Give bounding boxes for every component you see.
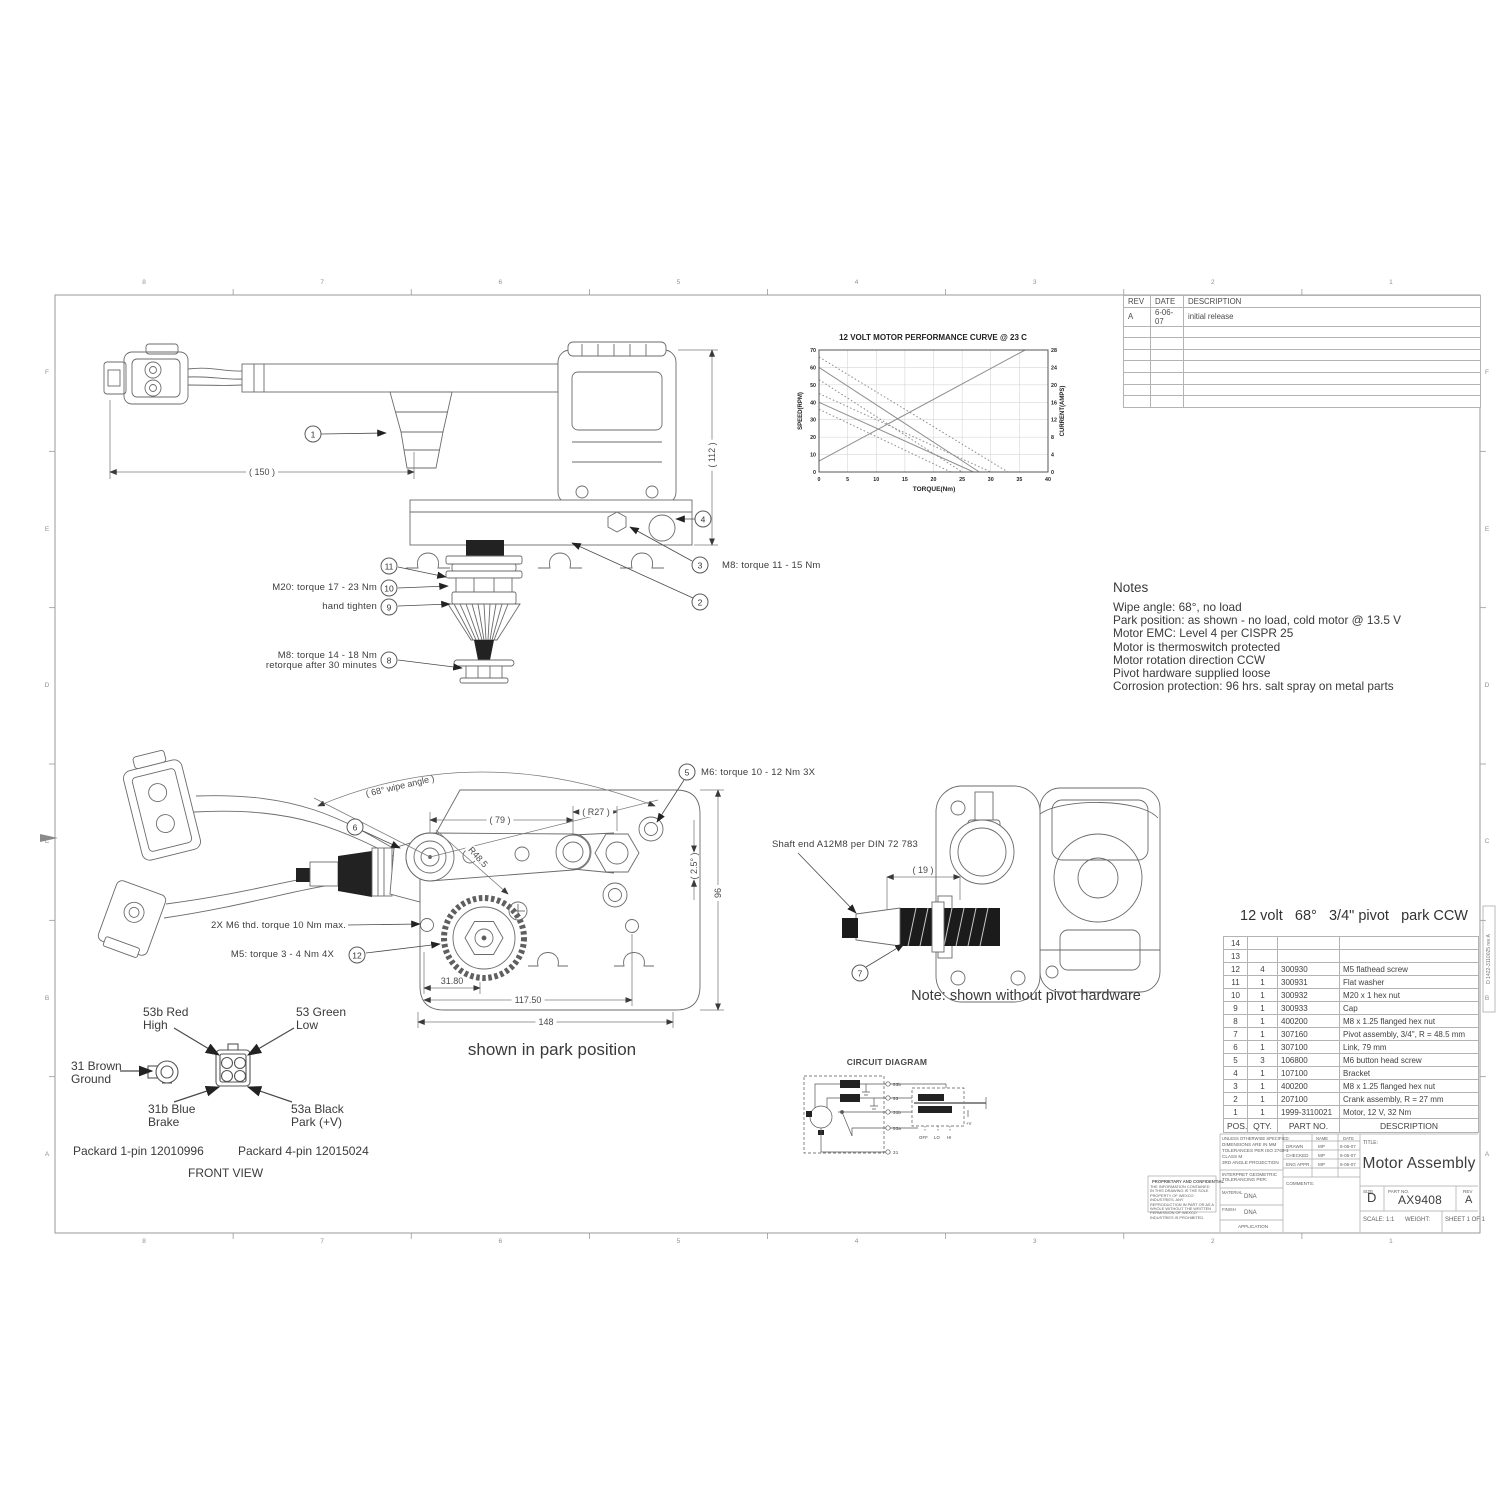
- tb-interpret: INTERPRET GEOMETRIC TOLERANCING PER:: [1222, 1172, 1280, 1182]
- tb-engappr-label: ENG APPR.: [1286, 1162, 1311, 1167]
- circuit-terminal-53a: 53a: [893, 1124, 901, 1135]
- zone-label: C: [1485, 838, 1490, 845]
- shaft-caption: Note: shown without pivot hardware: [911, 988, 1141, 1004]
- dim-79: ( 79 ): [486, 815, 513, 825]
- dim-r27: ( R27 ): [579, 807, 613, 817]
- packard-4pin-label: Packard 4-pin 12015024: [238, 1144, 369, 1158]
- tb-material-label: MATERIAL: [1222, 1190, 1243, 1195]
- svg-text:4: 4: [1051, 453, 1054, 459]
- pin-low-line2: Low: [296, 1019, 346, 1032]
- callout-m6-3x: M6: torque 10 - 12 Nm 3X: [701, 768, 815, 779]
- svg-text:8: 8: [1051, 435, 1054, 441]
- zone-label: A: [45, 1151, 49, 1158]
- parts-row: 111999-3110021Motor, 12 V, 32 Nm: [1224, 1106, 1479, 1119]
- pin-label-low: 53 Green Low: [296, 1006, 346, 1032]
- rev-header-cell: DESCRIPTION: [1184, 296, 1481, 308]
- zone-label: 2: [1211, 1238, 1215, 1245]
- notes-title: Notes: [1113, 580, 1148, 595]
- spec-pivot: 3/4" pivot: [1329, 908, 1389, 924]
- circuit-terminal-53: 53: [893, 1094, 898, 1105]
- callout-m5: M5: torque 3 - 4 Nm 4X: [134, 950, 334, 961]
- dim-96: 96: [713, 885, 723, 901]
- zone-label: B: [45, 995, 49, 1002]
- zone-label: 6: [499, 279, 503, 286]
- tb-drawn-label: DRAWN: [1286, 1144, 1303, 1149]
- note-line-7: Corrosion protection: 96 hrs. salt spray…: [1113, 680, 1401, 693]
- zone-label: 7: [320, 279, 324, 286]
- zone-label: D: [45, 682, 50, 689]
- circuit-title: CIRCUIT DIAGRAM: [847, 1057, 927, 1068]
- zone-label: 1: [1389, 1238, 1393, 1245]
- svg-text:30: 30: [988, 477, 994, 483]
- zone-label: 8: [142, 279, 146, 286]
- pin-brake-line2: Brake: [148, 1116, 195, 1129]
- tb-proprietary-body: THE INFORMATION CONTAINED IN THIS DRAWIN…: [1150, 1185, 1214, 1220]
- svg-text:24: 24: [1051, 365, 1057, 371]
- tb-comments-label: COMMENTS:: [1286, 1181, 1314, 1186]
- callout-hand-tighten: hand tighten: [177, 602, 377, 613]
- balloon-1: 1: [305, 426, 322, 443]
- tb-application: APPLICATION: [1238, 1224, 1268, 1229]
- svg-text:30: 30: [810, 418, 816, 424]
- svg-text:40: 40: [1045, 477, 1051, 483]
- pin-label-ground: 31 Brown Ground: [71, 1060, 122, 1086]
- balloon-5: 5: [679, 764, 696, 781]
- circuit-terminal-31: 31: [893, 1148, 898, 1159]
- svg-text:10: 10: [873, 477, 879, 483]
- rev-empty-row: [1124, 372, 1481, 384]
- zone-label: A: [1485, 1151, 1489, 1158]
- parts-row: 41107100Bracket: [1224, 1067, 1479, 1080]
- notes-list: Wipe angle: 68°, no loadPark position: a…: [1113, 601, 1401, 693]
- parts-row: 124300930M5 flathead screw: [1224, 963, 1479, 976]
- tb-drawn-name: MP: [1318, 1144, 1325, 1149]
- spec-line: 12 volt 68° 3/4" pivot park CCW: [1240, 908, 1468, 924]
- dim-148: 148: [535, 1017, 556, 1027]
- tb-checked-label: CHECKED: [1286, 1153, 1308, 1158]
- parts-row: 71307160Pivot assembly, 3/4", R = 48.5 m…: [1224, 1028, 1479, 1041]
- tb-rev-value: A: [1465, 1195, 1473, 1206]
- svg-text:10: 10: [810, 453, 816, 459]
- circuit-terminal-53b: 53b: [893, 1080, 901, 1091]
- tb-scale: SCALE: 1:1: [1363, 1218, 1394, 1223]
- balloon-12: 12: [349, 947, 366, 964]
- tb-partno-value: AX9408: [1398, 1195, 1442, 1206]
- svg-text:0: 0: [1051, 470, 1054, 476]
- tb-drawn-date: 6-06-07: [1340, 1144, 1356, 1149]
- zone-label: E: [45, 526, 49, 533]
- parts-row: 91300933Cap: [1224, 1002, 1479, 1015]
- svg-text:70: 70: [810, 348, 816, 354]
- shaft-view-art: [842, 786, 1160, 1002]
- svg-text:50: 50: [810, 383, 816, 389]
- tb-unless: UNLESS OTHERWISE SPECIFIED:: [1222, 1136, 1290, 1141]
- rev-empty-row: [1124, 384, 1481, 396]
- parts-row: 14: [1224, 937, 1479, 950]
- rev-row: A6-06-07initial release: [1124, 307, 1481, 326]
- spec-wipe-angle: 68°: [1295, 908, 1317, 924]
- svg-text:20: 20: [1051, 383, 1057, 389]
- performance-chart: 0102030405060700481216202428051015202530…: [790, 330, 1080, 505]
- side-view-art: [104, 342, 692, 683]
- circuit-switch-lo: LO: [934, 1133, 940, 1144]
- balloon-6: 6: [347, 819, 364, 836]
- tb-name-header: NAME: [1316, 1136, 1328, 1141]
- tb-engappr-name: MP: [1318, 1162, 1325, 1167]
- tb-projection: 3RD ANGLE PROJECTION: [1222, 1160, 1279, 1165]
- front-view-caption: FRONT VIEW: [188, 1166, 263, 1180]
- packard-1pin-label: Packard 1-pin 12010996: [73, 1144, 204, 1158]
- pin-park-line2: Park (+V): [291, 1116, 344, 1129]
- rev-empty-row: [1124, 349, 1481, 361]
- zone-label: 3: [1033, 279, 1037, 286]
- chart-ylabel-right: CURRENT(AMPS): [1060, 386, 1066, 437]
- zone-label: 6: [499, 1238, 503, 1245]
- parts-row: 13: [1224, 950, 1479, 963]
- rev-empty-row: [1124, 361, 1481, 373]
- rev-empty-row: [1124, 326, 1481, 338]
- park-caption: shown in park position: [468, 1040, 636, 1060]
- circuit-switch-off: OFF: [919, 1133, 928, 1144]
- rev-header-cell: DATE: [1151, 296, 1184, 308]
- zone-label: F: [1485, 369, 1489, 376]
- tb-sheet: SHEET 1 OF 1: [1445, 1218, 1485, 1223]
- svg-text:60: 60: [810, 365, 816, 371]
- chart-title: 12 VOLT MOTOR PERFORMANCE CURVE @ 23 C: [839, 333, 1027, 342]
- engineering-drawing-sheet: 0102030405060700481216202428051015202530…: [0, 0, 1500, 1500]
- parts-row: 31400200M8 x 1.25 flanged hex nut: [1224, 1080, 1479, 1093]
- balloon-7: 7: [852, 965, 869, 982]
- dim-112: ( 112 ): [707, 439, 717, 470]
- svg-text:25: 25: [959, 477, 965, 483]
- tb-dims-mm: DIMENSIONS ARE IN MM: [1222, 1142, 1276, 1147]
- dim-2-5deg: ( 2.5° ): [689, 849, 699, 882]
- zone-label: 4: [855, 1238, 859, 1245]
- callout-m20-torque: M20: torque 17 - 23 Nm: [177, 583, 377, 594]
- dim-19: ( 19 ): [909, 865, 936, 875]
- balloon-11: 11: [381, 558, 398, 575]
- tb-date-header: DATE: [1343, 1136, 1354, 1141]
- drawing-line-art: [0, 0, 1500, 1500]
- parts-row: 101300932M20 x 1 hex nut: [1224, 989, 1479, 1002]
- rev-header-cell: REV: [1124, 296, 1151, 308]
- svg-text:0: 0: [813, 470, 816, 476]
- svg-text:12: 12: [1051, 418, 1057, 424]
- tb-engappr-date: 6-06-07: [1340, 1162, 1356, 1167]
- callout-2x-m6: 2X M6 thd. torque 10 Nm max.: [146, 921, 346, 932]
- callout-m8-bracket: M8: torque 11 - 15 Nm: [722, 561, 821, 572]
- tb-weight: WEIGHT:: [1405, 1218, 1430, 1223]
- zone-label: 5: [677, 279, 681, 286]
- balloon-10: 10: [381, 580, 398, 597]
- zone-label: C: [45, 838, 50, 845]
- parts-row: 81400200M8 x 1.25 flanged hex nut: [1224, 1015, 1479, 1028]
- balloon-9: 9: [381, 599, 398, 616]
- zone-label: 2: [1211, 279, 1215, 286]
- svg-text:35: 35: [1016, 477, 1022, 483]
- svg-text:15: 15: [902, 477, 908, 483]
- zone-label: 4: [855, 279, 859, 286]
- balloon-4: 4: [695, 511, 712, 528]
- balloon-3: 3: [692, 557, 709, 574]
- balloon-2: 2: [692, 594, 709, 611]
- parts-header-row: POS.QTY.PART NO.DESCRIPTION: [1224, 1119, 1479, 1133]
- tb-class: CLASS M: [1222, 1154, 1242, 1159]
- circuit-switch-hi: HI: [947, 1133, 952, 1144]
- revision-table: REVDATEDESCRIPTIONA6-06-07initial releas…: [1123, 295, 1481, 408]
- pin-label-park: 53a Black Park (+V): [291, 1103, 344, 1129]
- zone-label: 8: [142, 1238, 146, 1245]
- chart-ylabel-left: SPEED(RPM): [798, 392, 804, 430]
- document-stamp: D 1422-3110025 rev A: [1486, 934, 1492, 984]
- chart-xlabel: TORQUE(Nm): [913, 486, 956, 493]
- spec-park: park CCW: [1401, 908, 1468, 924]
- parts-row: 21207100Crank assembly, R = 27 mm: [1224, 1093, 1479, 1106]
- spec-voltage: 12 volt: [1240, 908, 1283, 924]
- pin-ground-line2: Ground: [71, 1073, 122, 1086]
- svg-text:5: 5: [846, 477, 849, 483]
- rev-empty-row: [1124, 338, 1481, 350]
- svg-text:0: 0: [818, 477, 821, 483]
- rev-empty-row: [1124, 396, 1481, 408]
- parts-row: 111300931Flat washer: [1224, 976, 1479, 989]
- parts-row: 61307100Link, 79 mm: [1224, 1041, 1479, 1054]
- svg-text:40: 40: [810, 400, 816, 406]
- balloon-8: 8: [381, 652, 398, 669]
- tb-material-value: DNA: [1244, 1195, 1257, 1200]
- pin-high-line2: High: [143, 1019, 188, 1032]
- tb-checked-name: MP: [1318, 1153, 1325, 1158]
- dim-150: ( 150 ): [246, 467, 278, 477]
- svg-text:20: 20: [810, 435, 816, 441]
- circuit-terminal-31b: 31b: [893, 1108, 901, 1119]
- tb-size-value: D: [1367, 1193, 1377, 1204]
- tb-finish-label: FINISH: [1222, 1207, 1236, 1212]
- dim-117-50: 117.50: [512, 995, 545, 1005]
- zone-label: F: [45, 369, 49, 376]
- rev-header-row: REVDATEDESCRIPTION: [1124, 296, 1481, 308]
- circuit-plus-v: +V: [966, 1119, 972, 1130]
- pin-label-high: 53b Red High: [143, 1006, 188, 1032]
- dim-31-80: 31.80: [438, 976, 467, 986]
- tb-title-label: TITLE:: [1363, 1141, 1378, 1146]
- zone-label: B: [1485, 995, 1489, 1002]
- parts-row: 53106800M6 button head screw: [1224, 1054, 1479, 1067]
- pin-label-brake: 31b Blue Brake: [148, 1103, 195, 1129]
- zone-label: E: [1485, 526, 1489, 533]
- note-line-4: Motor is thermoswitch protected: [1113, 641, 1401, 654]
- tb-checked-date: 6-06-07: [1340, 1153, 1356, 1158]
- tb-finish-value: DNA: [1244, 1211, 1257, 1216]
- svg-text:28: 28: [1051, 348, 1057, 354]
- zone-label: 3: [1033, 1238, 1037, 1245]
- drawing-title: Motor Assembly: [1362, 1159, 1475, 1170]
- callout-m8-shaft-line2: retorque after 30 minutes: [177, 661, 377, 672]
- svg-text:20: 20: [931, 477, 937, 483]
- connector-view-art: [148, 1044, 250, 1086]
- tb-tolerances: TOLERANCES PER ISO 2768-1: [1222, 1148, 1289, 1153]
- zone-label: 7: [320, 1238, 324, 1245]
- callout-shaft-end: Shaft end A12M8 per DIN 72 783: [772, 840, 918, 851]
- zone-label: 1: [1389, 279, 1393, 286]
- zone-label: 5: [677, 1238, 681, 1245]
- parts-list-table: 1413124300930M5 flathead screw111300931F…: [1223, 936, 1479, 1133]
- zone-label: D: [1485, 682, 1490, 689]
- svg-text:16: 16: [1051, 400, 1057, 406]
- note-line-3: Motor EMC: Level 4 per CISPR 25: [1113, 627, 1401, 640]
